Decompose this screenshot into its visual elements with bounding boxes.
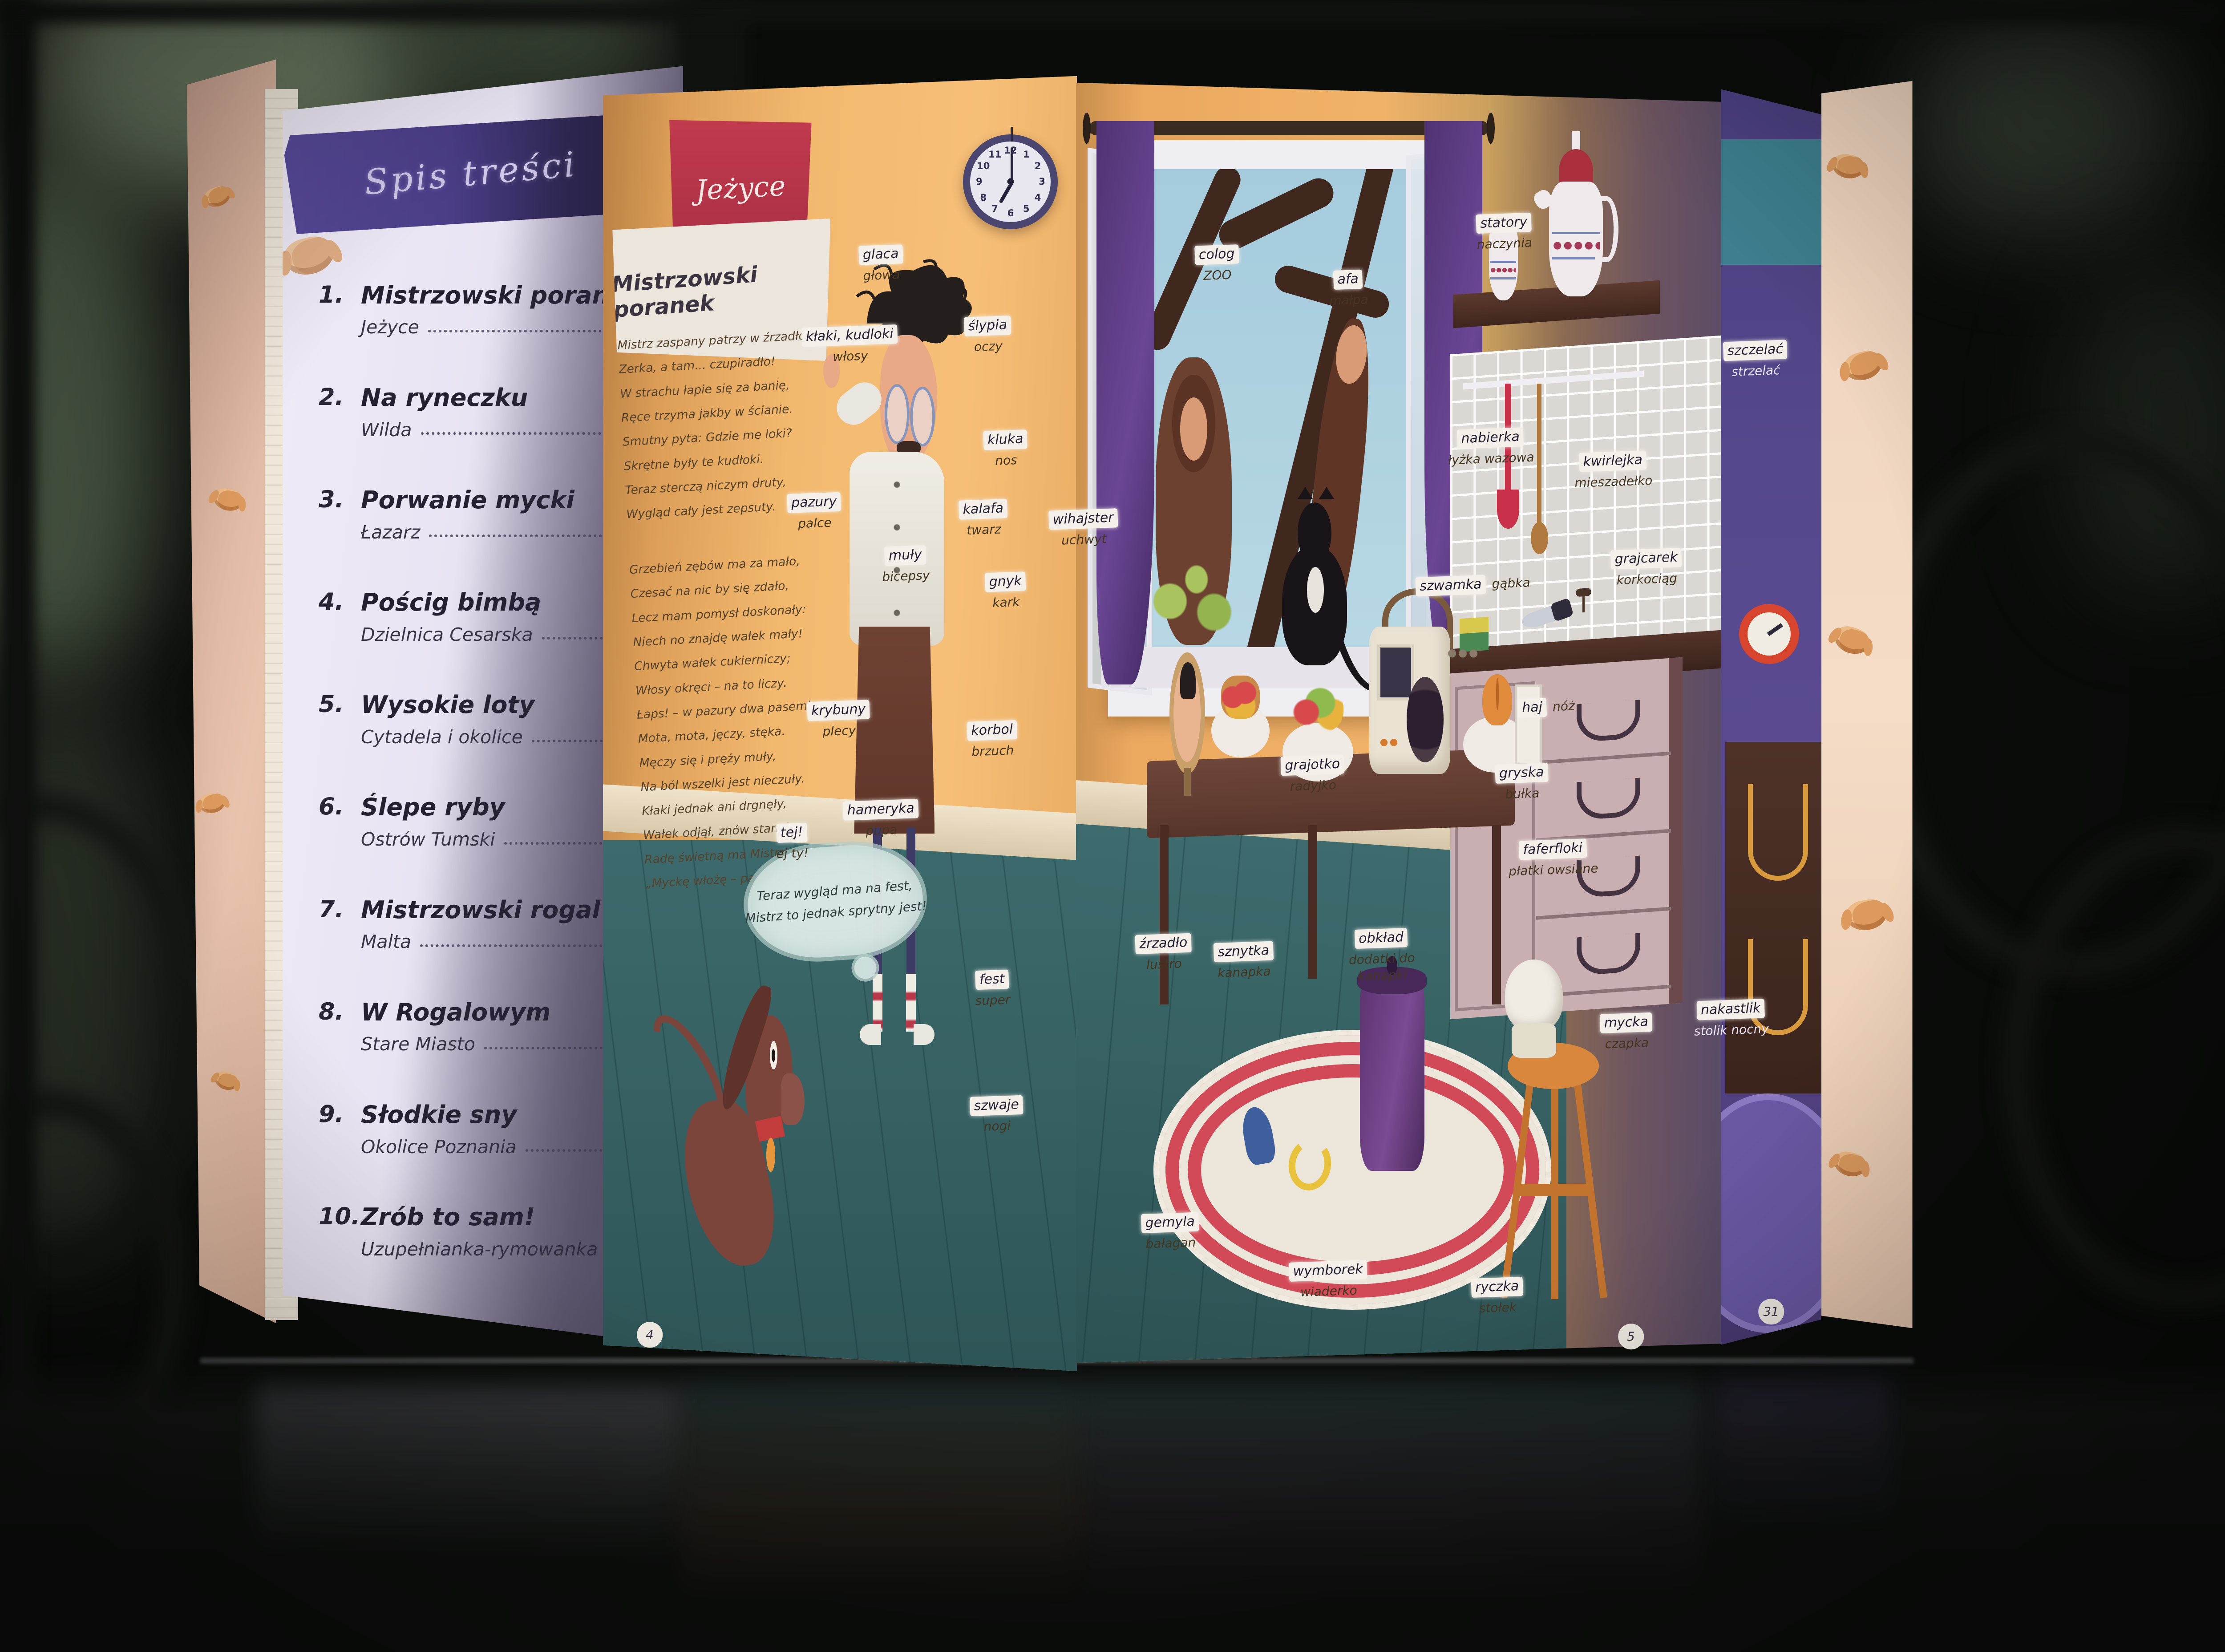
label-grajcarek: grajcarekkorkociąg xyxy=(1610,548,1683,589)
standard-word: radyjko xyxy=(1281,776,1345,795)
label-kalafa: kalafatwarz xyxy=(959,499,1008,539)
drawer-handle xyxy=(1748,784,1808,880)
dialect-word: wihajster xyxy=(1048,508,1118,530)
croissant-pattern xyxy=(198,791,227,814)
kitchen-page xyxy=(1076,83,1721,1363)
alarm-clock xyxy=(1739,604,1799,664)
toc-item-number: 4. xyxy=(319,588,361,645)
standard-word: bicepsy xyxy=(882,567,930,585)
standard-word: super xyxy=(975,991,1011,1009)
table-leg xyxy=(1308,825,1317,979)
dialect-word: fest xyxy=(975,970,1009,990)
standard-word: twarz xyxy=(959,520,1009,539)
dialect-word: pazury xyxy=(787,492,841,513)
label-źrzadło: źrzadłolustro xyxy=(1135,933,1192,973)
chef-foot xyxy=(914,1024,935,1045)
clock-center xyxy=(1007,178,1014,185)
clock-number: 9 xyxy=(976,176,983,187)
table-leg xyxy=(1492,825,1501,1004)
label-obkład: obkładdodatki do kanapki xyxy=(1330,927,1434,986)
standard-word: stołek xyxy=(1472,1298,1524,1317)
standard-word: ej ty! xyxy=(776,844,809,862)
croissant-pattern xyxy=(213,1069,240,1093)
curtain xyxy=(1096,121,1155,684)
dialect-word: kluka xyxy=(983,429,1028,450)
page-number-left: 4 xyxy=(637,1322,663,1348)
page-reflection xyxy=(1713,1377,1891,1568)
label-pazury: pazurypalce xyxy=(787,492,841,532)
toc-item-number: 3. xyxy=(319,486,361,543)
croissant-stamp xyxy=(283,232,337,279)
dialect-word: sznytka xyxy=(1214,941,1274,962)
dialect-word: haj xyxy=(1518,697,1547,717)
label-krybuny: krybunyplecy xyxy=(807,700,870,741)
standard-word: czapka xyxy=(1601,1034,1653,1053)
chef-foot xyxy=(860,1024,881,1045)
standard-word: kark xyxy=(986,593,1027,611)
label-gemyla: gemylabałagan xyxy=(1141,1212,1200,1253)
label-mycka: myckaczapka xyxy=(1600,1012,1653,1053)
dialect-word: kalafa xyxy=(959,499,1008,519)
clock-number: 4 xyxy=(1035,192,1041,203)
blurred-glass xyxy=(1913,16,2180,231)
clock-number: 3 xyxy=(1039,176,1045,187)
label-grajotko: grajotkoradyjko xyxy=(1281,754,1345,795)
stool xyxy=(1502,1043,1605,1299)
standard-word: korkociąg xyxy=(1611,569,1683,588)
page-number-right: 5 xyxy=(1618,1324,1644,1349)
toc-item-number: 8. xyxy=(319,998,361,1055)
bread-roll xyxy=(1482,674,1512,725)
dialect-word: mycka xyxy=(1600,1012,1653,1033)
standard-word: nogi xyxy=(971,1117,1024,1135)
dog-tag xyxy=(766,1138,775,1172)
dialect-word: szwaje xyxy=(970,1095,1023,1116)
toc-header: Spis treści xyxy=(363,144,579,202)
dialect-word: szwamka xyxy=(1416,575,1486,596)
wooden-stirrer xyxy=(1537,384,1541,531)
clock-number: 1 xyxy=(1023,149,1030,160)
page-number-value: 4 xyxy=(646,1328,654,1342)
dialect-word: colog xyxy=(1194,244,1239,265)
label-haj: hajnóż xyxy=(1518,696,1575,717)
standard-word: stolik nocny xyxy=(1694,1020,1769,1040)
dialect-word: muły xyxy=(884,545,926,566)
poem-text: Mistrz zaspany patrzy w źrzadło,Zerka, a… xyxy=(617,324,836,896)
book-cover-edge xyxy=(187,60,276,1324)
dialect-word: kwirlejka xyxy=(1579,450,1647,472)
page-reflection xyxy=(1079,1380,1702,1606)
toc-item-number: 2. xyxy=(319,384,361,441)
dialect-word: faferfloki xyxy=(1519,838,1587,860)
label-nakastlik: nakastlikstolik nocny xyxy=(1693,999,1769,1040)
label-fest: festsuper xyxy=(974,970,1011,1009)
wall-clock: 121234567891011 xyxy=(963,134,1058,229)
toc-item-number: 9. xyxy=(319,1101,361,1158)
standard-word: ZOO xyxy=(1195,266,1240,284)
toc-item-number: 5. xyxy=(319,691,361,748)
dialect-word: grajcarek xyxy=(1610,548,1682,569)
cat-patch xyxy=(1307,567,1324,613)
croissant-pattern xyxy=(1832,1149,1869,1179)
black-cat xyxy=(1276,511,1353,665)
hand-mirror xyxy=(1169,652,1205,774)
standard-word: kanapka xyxy=(1214,963,1274,981)
standard-word: bułka xyxy=(1496,785,1549,803)
label-ślypia: ślypiaoczy xyxy=(964,316,1012,356)
radio-knobs xyxy=(1447,646,1479,661)
standard-word: brzuch xyxy=(967,741,1018,760)
drawer xyxy=(1536,756,1671,842)
label-kwirlejka: kwirlejkamieszadełko xyxy=(1574,450,1653,491)
toc-item-number: 6. xyxy=(319,793,361,850)
toc-item-number: 7. xyxy=(319,896,361,953)
standard-word: płatki owsiane xyxy=(1509,860,1599,880)
label-nabierka: nabierkałyżka wazowa xyxy=(1447,427,1534,468)
standard-word: mieszadełko xyxy=(1574,472,1653,491)
dialect-word: grajotko xyxy=(1281,754,1344,775)
standard-word: plecy xyxy=(808,721,871,741)
standard-word: naczynia xyxy=(1477,235,1532,253)
clock-number: 10 xyxy=(977,161,990,171)
open-sandwich xyxy=(1221,676,1260,719)
standard-word: palce xyxy=(788,514,842,532)
bedroom-page-sliver xyxy=(1721,89,1821,1344)
clock-number: 7 xyxy=(991,203,998,214)
chapter-title: Mistrzowski poranek xyxy=(611,257,832,323)
dialect-word: gryska xyxy=(1495,763,1548,784)
cat-ear xyxy=(1319,487,1334,499)
croissant-pattern xyxy=(1831,152,1866,181)
purple-bucket xyxy=(1360,979,1424,1171)
standard-word: głowa xyxy=(859,266,904,284)
photo-scene: Spis treści 1. Mistrzowski poranek Jeżyc… xyxy=(0,0,2225,1652)
dialect-word: gemyla xyxy=(1141,1212,1199,1233)
label-hameryka: hamerykapupa xyxy=(843,799,919,840)
dialect-word: obkład xyxy=(1354,928,1408,949)
dialect-word: statory xyxy=(1476,213,1532,234)
dialect-word: tej! xyxy=(776,823,807,843)
label-wihajster: wihajsteruchwyt xyxy=(1048,508,1119,549)
chef-hat xyxy=(1505,960,1563,1062)
dialect-word: ryczka xyxy=(1471,1277,1523,1298)
clock-string xyxy=(1011,127,1013,142)
standard-word: nos xyxy=(984,451,1028,469)
toc-banner: Spis treści xyxy=(283,104,659,243)
drawer xyxy=(1536,679,1671,764)
dialect-word: kłaki, kudloki xyxy=(801,324,898,347)
standard-word: gąbka xyxy=(1492,575,1530,591)
bedroom-rug xyxy=(1721,1093,1821,1333)
standard-word: pupa xyxy=(844,821,919,840)
standard-word: łyżka wazowa xyxy=(1448,449,1534,469)
label-glaca: glacagłowa xyxy=(858,244,904,284)
label-gnyk: gnykkark xyxy=(985,571,1027,611)
dialect-word: nabierka xyxy=(1457,427,1524,449)
label-tej!: tej!ej ty! xyxy=(775,823,809,862)
label-kłaki-kudloki: kłaki, kudlokiwłosy xyxy=(801,324,898,366)
clock-number: 5 xyxy=(1023,203,1030,214)
dialect-word: glaca xyxy=(858,244,903,265)
label-gryska: gryskabułka xyxy=(1495,763,1549,803)
label-faferfloki: faferflokipłatki owsiane xyxy=(1508,838,1598,880)
page-number-value: 5 xyxy=(1627,1329,1635,1344)
croissant-pattern xyxy=(1844,897,1889,933)
dialect-word: gnyk xyxy=(985,571,1026,592)
table-leg xyxy=(1160,825,1169,1004)
dialect-word: krybuny xyxy=(807,700,870,721)
label-korbol: korbolbrzuch xyxy=(967,720,1018,760)
label-kluka: klukanos xyxy=(983,429,1028,470)
croissant-pattern xyxy=(1841,348,1885,384)
clock-number: 12 xyxy=(1004,145,1017,156)
standard-word: dodatki do kanapki xyxy=(1331,949,1434,986)
stool-bar xyxy=(1516,1184,1590,1197)
standard-word: strzelać xyxy=(1724,361,1788,381)
toc-item-number: 1. xyxy=(319,281,361,338)
clock-number: 2 xyxy=(1035,161,1041,171)
label-sznytka: sznytkakanapka xyxy=(1214,941,1274,982)
endpaper-croissants xyxy=(1821,81,1913,1328)
page-reflection xyxy=(256,1386,679,1588)
standard-word: wiaderko xyxy=(1290,1281,1368,1301)
label-ryczka: ryczkastołek xyxy=(1471,1277,1524,1317)
clock-number: 6 xyxy=(1007,208,1014,219)
drawer-handle xyxy=(1576,777,1640,820)
label-szczelać: szczelaćstrzelać xyxy=(1723,340,1788,381)
corkscrew xyxy=(1576,588,1591,632)
dialect-word: wymborek xyxy=(1289,1260,1367,1282)
croissant-pattern xyxy=(202,183,233,210)
clock-number: 11 xyxy=(988,149,1001,160)
toc-item-number: 10. xyxy=(319,1203,361,1260)
district-tab-label: Jeżyce xyxy=(695,170,786,206)
standard-word: bałagan xyxy=(1142,1234,1200,1252)
chef-sock xyxy=(873,974,882,1032)
croissant-pattern xyxy=(211,486,245,514)
teapot xyxy=(1541,149,1612,296)
page-number-value: 31 xyxy=(1764,1304,1779,1319)
cat-head xyxy=(1298,502,1332,564)
dialect-word: szczelać xyxy=(1723,340,1788,361)
window-mullion xyxy=(0,0,2225,23)
dog-eye xyxy=(770,1041,777,1069)
cat-ear xyxy=(1298,487,1313,499)
table-surface xyxy=(0,1363,2225,1652)
standard-word: lustro xyxy=(1136,955,1192,973)
drawer-handle xyxy=(1576,700,1640,742)
label-szwaje: szwajenogi xyxy=(970,1095,1024,1135)
mirror-stand xyxy=(1184,768,1191,796)
bedroom-window-strip xyxy=(1721,139,1821,265)
standard-word: nóż xyxy=(1552,698,1575,714)
radio-buttons xyxy=(1379,736,1399,750)
dialect-word: korbol xyxy=(967,720,1017,741)
page-reflection xyxy=(679,1380,1079,1606)
label-afa: afamałpa xyxy=(1328,269,1368,309)
milk-carton xyxy=(1515,684,1542,766)
label-wymborek: wymborekwiaderko xyxy=(1289,1260,1368,1301)
croissant-pattern xyxy=(1831,623,1873,658)
standard-word: włosy xyxy=(802,346,898,366)
label-muły: mułybicepsy xyxy=(881,545,930,585)
label-szwamka: szwamkagąbka xyxy=(1416,573,1531,596)
nightstand xyxy=(1725,742,1821,1093)
teapot-handle xyxy=(1595,196,1618,262)
page-number-next: 31 xyxy=(1758,1299,1784,1325)
dialect-word: źrzadło xyxy=(1135,933,1192,954)
dialect-word: ślypia xyxy=(964,316,1011,336)
salad xyxy=(1292,687,1343,733)
standard-word: oczy xyxy=(964,337,1012,355)
standard-word: małpa xyxy=(1329,291,1369,309)
label-statory: statorynaczynia xyxy=(1476,213,1532,253)
dialect-word: hameryka xyxy=(843,799,918,820)
drawer-handle xyxy=(1576,933,1640,976)
chef-sock xyxy=(906,974,916,1032)
standard-word: uchwyt xyxy=(1049,530,1119,549)
leaves xyxy=(1144,536,1232,645)
clock-number: 8 xyxy=(980,192,987,203)
dialect-word: afa xyxy=(1333,269,1363,289)
dialect-word: nakastlik xyxy=(1696,999,1765,1020)
label-colog: cologZOO xyxy=(1194,244,1240,284)
radio xyxy=(1369,627,1450,774)
